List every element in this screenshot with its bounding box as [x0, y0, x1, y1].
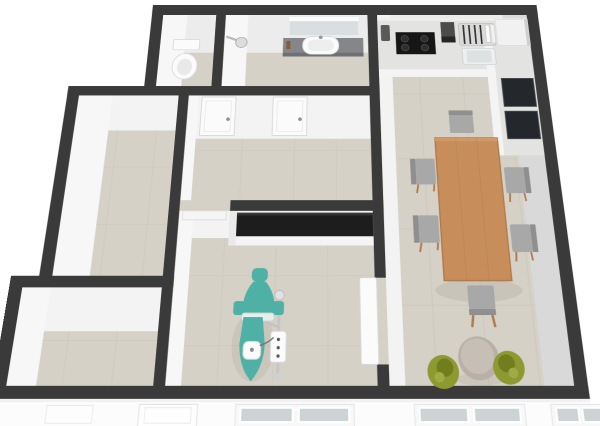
- counter-black-top: [236, 213, 374, 237]
- chair-seat: [418, 215, 440, 242]
- facade-window-3: [551, 404, 600, 426]
- window-pane: [419, 408, 468, 422]
- living-west-wall-lower: [377, 364, 390, 398]
- window-pane: [299, 408, 350, 422]
- window-pane: [582, 408, 600, 422]
- window-pane: [474, 408, 522, 422]
- burner: [401, 35, 409, 42]
- vanity-accent-item: [286, 41, 290, 49]
- counter-black-edge: [237, 213, 373, 216]
- washbasin-inner: [308, 39, 334, 51]
- south-wall: [0, 386, 590, 399]
- hallway-south-wall: [230, 200, 384, 211]
- delivery-foot: [272, 373, 284, 378]
- dining-chair-top[interactable]: [448, 110, 474, 133]
- window-pane: [240, 408, 293, 422]
- entry-door[interactable]: [137, 404, 197, 426]
- black-top-counter[interactable]: [228, 211, 374, 246]
- hallway-opening-floor: [179, 200, 230, 211]
- faucet: [319, 35, 323, 39]
- chair-back: [469, 309, 496, 315]
- floorplan-svg: [0, 5, 600, 426]
- bathroom-west-wall-face: [221, 15, 248, 86]
- perspective-scene: [0, 0, 600, 426]
- facade-panel: [45, 405, 94, 423]
- facade-window-1: [235, 404, 355, 426]
- dental-chair-headrest: [252, 268, 268, 281]
- floorplan-plane: [0, 5, 600, 426]
- kettle[interactable]: [381, 25, 391, 41]
- hallway-north-wall: [67, 86, 380, 95]
- shower-head[interactable]: [235, 37, 247, 47]
- refrigerator-cabinet[interactable]: [495, 19, 531, 45]
- chair-seat: [510, 224, 533, 252]
- cooktop-surface: [396, 32, 437, 54]
- mirror-light: [288, 16, 359, 21]
- dark-module: [501, 78, 536, 106]
- kitchen-sink[interactable]: [462, 48, 497, 64]
- table-edge-highlight: [435, 138, 498, 141]
- entry-north-wall: [9, 276, 174, 288]
- mirror[interactable]: [290, 21, 358, 35]
- open-door-leaf-flat[interactable]: [182, 211, 226, 220]
- floorplan-3d-view: [0, 0, 600, 426]
- chair-seat: [467, 285, 496, 309]
- window-pane: [556, 408, 580, 422]
- toilet-tank: [173, 39, 200, 49]
- north-wall: [152, 5, 538, 15]
- burner: [421, 44, 429, 51]
- facade-window-2: [414, 404, 527, 426]
- open-door-leaf[interactable]: [360, 278, 379, 365]
- hallway-door-1[interactable]: [199, 97, 236, 135]
- dish-rack[interactable]: [458, 24, 496, 46]
- counter-white-front: [236, 236, 374, 245]
- dark-module: [505, 111, 541, 139]
- burner: [401, 44, 409, 51]
- chair-seat: [415, 159, 436, 185]
- chair-seat: [504, 167, 526, 193]
- coffee-machine[interactable]: [440, 22, 455, 42]
- sink-basin: [466, 51, 492, 63]
- burner: [420, 35, 428, 42]
- cooktop[interactable]: [396, 32, 437, 54]
- lamp-pivot: [275, 290, 285, 300]
- coffee-machine-front: [441, 37, 455, 43]
- chair-seat: [449, 115, 475, 133]
- dental-chair-armrest-right: [272, 301, 284, 315]
- chair-back: [448, 110, 472, 115]
- hallway-door-2[interactable]: [272, 97, 307, 135]
- facade-top-line: [0, 399, 590, 402]
- south-facade: [0, 399, 600, 426]
